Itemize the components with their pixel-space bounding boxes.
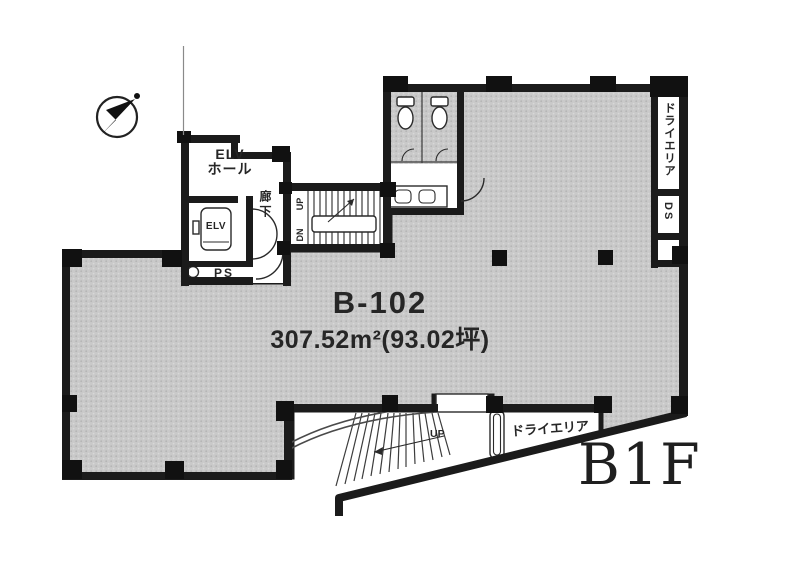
elv-hall-label: ELV ホール (184, 147, 276, 177)
stair-landing (436, 394, 488, 412)
unit-title: B-102 (300, 285, 460, 321)
dry-area-window (490, 410, 504, 459)
toilet-tank (397, 97, 414, 106)
elevator-car-label: ELV (200, 221, 232, 232)
sink-counter (389, 186, 447, 207)
north-arrow-icon (97, 93, 140, 137)
toilet-room (387, 88, 461, 212)
floor-plan-page: ELV ホール ELV PS 廊下 UP DN ドライエリア DS B-102 … (0, 0, 800, 569)
toilet-bowl (398, 107, 413, 129)
stair-rail (312, 216, 376, 232)
pipe-space-label: PS (200, 266, 248, 280)
unit-area: 307.52m²(93.02坪) (190, 320, 570, 356)
elv-hall-line2: ホール (184, 162, 276, 177)
toilet-tank (431, 97, 448, 106)
stair-down-label: DN (295, 223, 305, 247)
exterior-stair-up-label: UP (430, 428, 460, 440)
floor-label: B1F (578, 432, 708, 498)
elevator-counterweight (193, 221, 199, 234)
elv-hall-line1: ELV (184, 147, 276, 162)
duct-space-label: DS (662, 202, 674, 221)
pipe-circle (188, 267, 199, 278)
dry-area-right-label: ドライエリア (661, 102, 677, 177)
stair-up-label: UP (295, 192, 305, 216)
corridor-label: 廊下 (257, 190, 274, 220)
toilet-bowl (432, 107, 447, 129)
